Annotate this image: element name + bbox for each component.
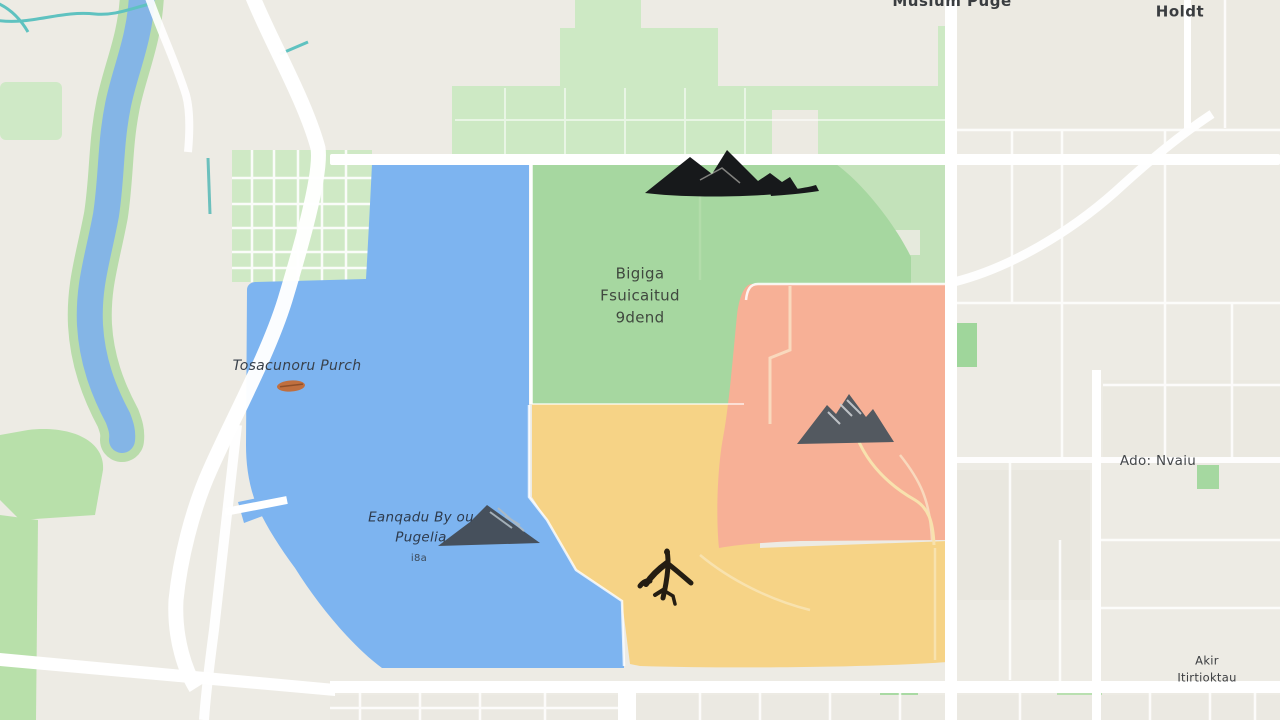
map-artwork xyxy=(0,0,1280,720)
map-canvas[interactable]: Bigiga Fsuicaitud 9dend Tosacunoru Purch… xyxy=(0,0,1280,720)
